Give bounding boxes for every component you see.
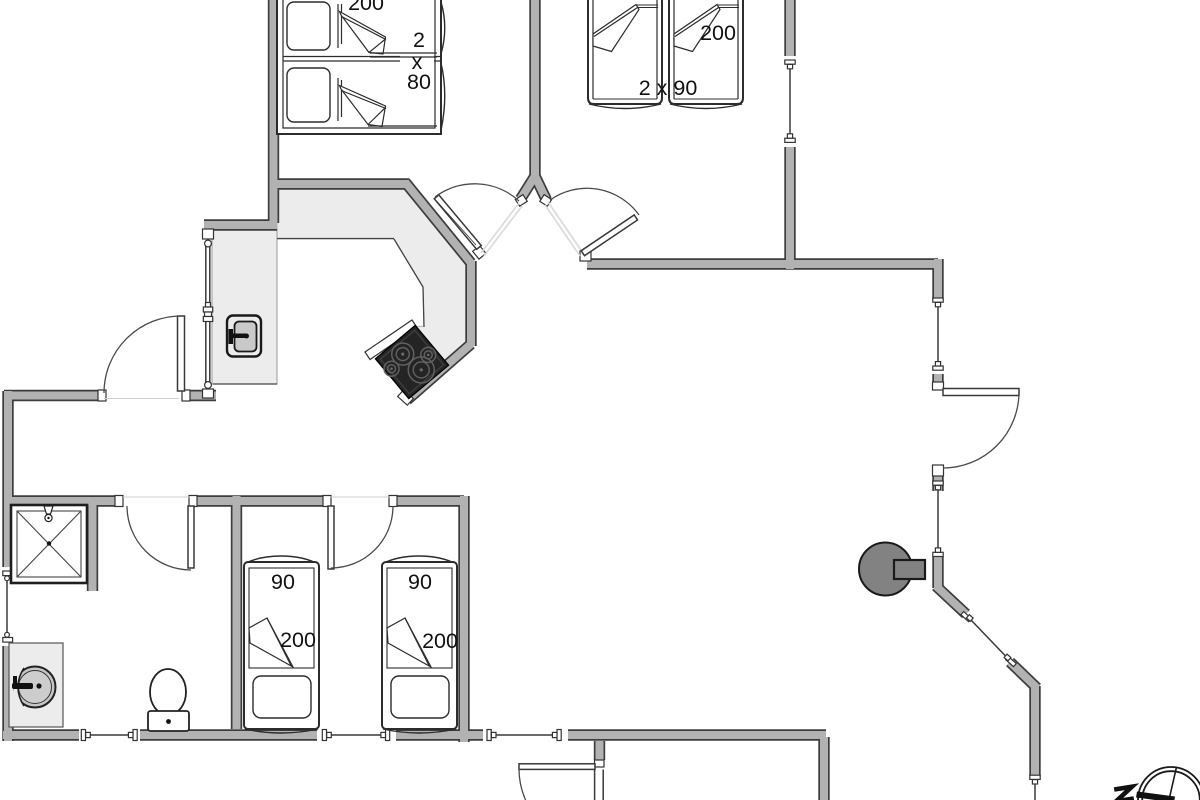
svg-text:2 x 90: 2 x 90 [639,76,698,100]
svg-text:200: 200 [700,21,736,45]
svg-text:90: 90 [408,570,432,594]
svg-text:80: 80 [407,70,431,94]
svg-text:200: 200 [422,629,458,653]
svg-text:90: 90 [271,570,295,594]
svg-text:200: 200 [280,628,316,652]
svg-text:200: 200 [348,0,384,15]
svg-text:2: 2 [413,28,425,52]
